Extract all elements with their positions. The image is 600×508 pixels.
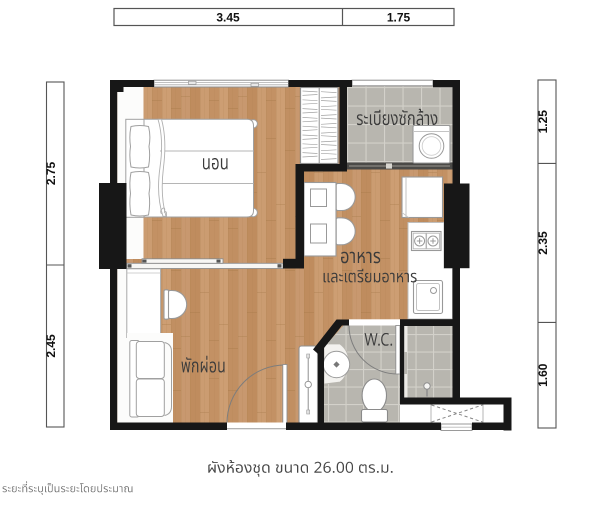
svg-text:2.75: 2.75 [44,161,58,185]
svg-text:2.35: 2.35 [536,231,550,255]
svg-text:2.45: 2.45 [44,334,58,358]
svg-text:1.25: 1.25 [536,110,550,134]
svg-text:3.45: 3.45 [216,11,240,25]
svg-text:1.60: 1.60 [536,363,550,387]
svg-text:1.75: 1.75 [387,11,411,25]
